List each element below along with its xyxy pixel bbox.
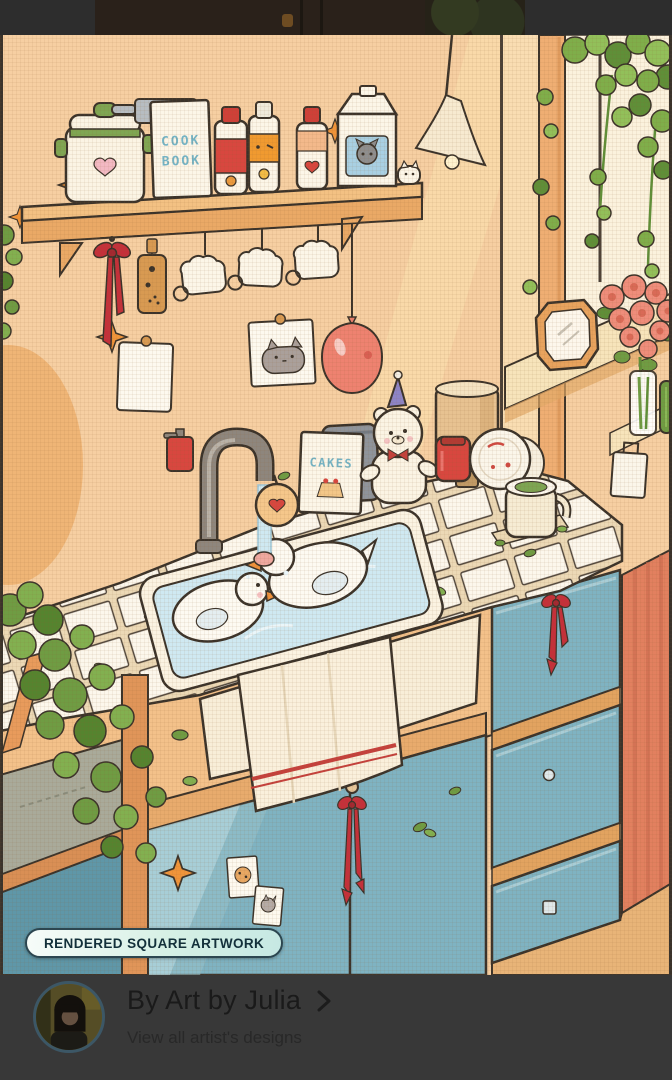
artist-avatar-photo — [36, 984, 102, 1050]
dimmed-foliage — [425, 0, 525, 35]
cookbook-text-line1: COOK — [161, 133, 201, 149]
cakes-book-text: CAKES — [309, 455, 353, 471]
cakes-book: CAKES — [299, 432, 364, 514]
drawer-knob — [544, 770, 555, 781]
drawer-knob — [543, 901, 556, 914]
artist-name-link[interactable]: By Art by Julia — [127, 985, 301, 1016]
app-screen: COOK BOOK — [0, 0, 672, 1080]
dimmed-beam-line — [320, 0, 323, 35]
ketchup-bottle — [215, 107, 247, 194]
artist-avatar[interactable] — [33, 981, 105, 1053]
dimmed-leaf — [282, 14, 293, 27]
rendered-artwork-badge: RENDERED SQUARE ARTWORK — [25, 928, 283, 958]
dimmed-beam-line — [300, 0, 303, 35]
badge-label: RENDERED SQUARE ARTWORK — [44, 936, 264, 951]
artist-panel: By Art by Julia View all artist's design… — [0, 975, 672, 1080]
cookbook-text-line2: BOOK — [162, 153, 202, 169]
note-paper — [117, 335, 174, 412]
artwork-border-left — [0, 35, 3, 975]
glass-vase — [630, 371, 656, 435]
mirror — [536, 300, 598, 370]
milk-carton — [338, 86, 396, 186]
cat-picture — [248, 312, 316, 386]
artwork-canvas[interactable]: COOK BOOK — [0, 35, 672, 975]
cookbook: COOK BOOK — [150, 100, 211, 198]
status-bar-area — [0, 0, 672, 35]
red-jar — [436, 437, 470, 481]
red-wall — [622, 549, 672, 913]
mustard-bottle — [249, 102, 279, 192]
view-designs-link[interactable]: View all artist's designs — [127, 1028, 302, 1048]
chevron-right-icon[interactable] — [317, 989, 331, 1013]
